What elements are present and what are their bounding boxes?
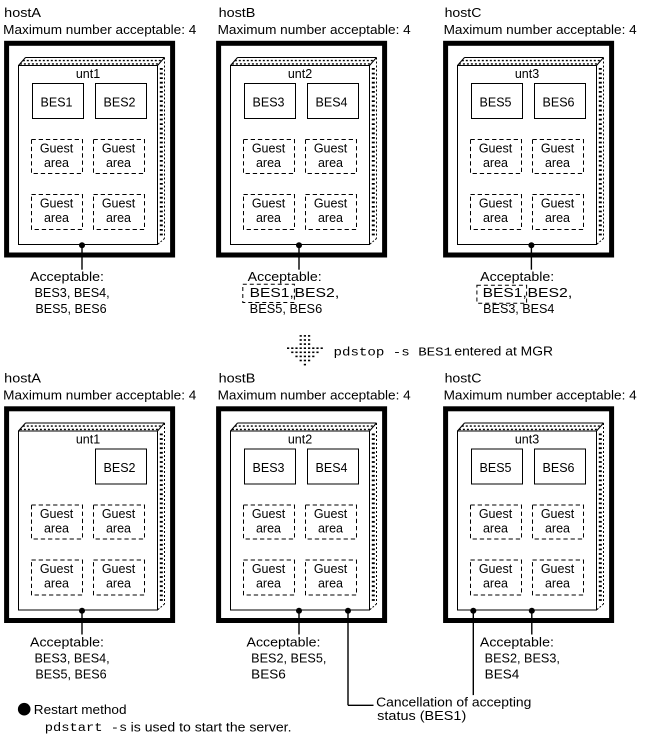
svg-text:area: area bbox=[256, 156, 281, 170]
svg-text:hostC: hostC bbox=[445, 6, 482, 20]
svg-text:unt3: unt3 bbox=[515, 432, 539, 446]
svg-text:Guest: Guest bbox=[479, 507, 513, 521]
svg-text:Guest: Guest bbox=[314, 141, 348, 155]
svg-text:BES4: BES4 bbox=[485, 667, 520, 681]
svg-text:unt2: unt2 bbox=[288, 432, 312, 446]
svg-text:Guest: Guest bbox=[479, 141, 513, 155]
svg-text:Maximum number acceptable: 4: Maximum number acceptable: 4 bbox=[3, 388, 196, 402]
svg-text:Acceptable:: Acceptable: bbox=[480, 635, 554, 649]
svg-text:BES2, BES5,: BES2, BES5, bbox=[251, 651, 326, 665]
svg-text:BES6: BES6 bbox=[543, 95, 575, 109]
svg-text:BES2: BES2 bbox=[104, 461, 136, 475]
svg-text:area: area bbox=[106, 521, 131, 535]
svg-text:unt3: unt3 bbox=[515, 67, 539, 81]
svg-text:BES6: BES6 bbox=[251, 667, 286, 681]
svg-text:BES3: BES3 bbox=[253, 95, 285, 109]
svg-text:Maximum number acceptable: 4: Maximum number acceptable: 4 bbox=[444, 388, 637, 402]
svg-text:BES2, BES3,: BES2, BES3, bbox=[485, 651, 560, 665]
svg-text:BES1: BES1 bbox=[41, 95, 73, 109]
svg-text:Cancellation of accepting: Cancellation of accepting bbox=[376, 696, 531, 710]
svg-text:is used to start the server.: is used to start the server. bbox=[131, 720, 292, 734]
svg-text:Guest: Guest bbox=[314, 197, 348, 211]
svg-text:Guest: Guest bbox=[252, 507, 286, 521]
svg-text:area: area bbox=[44, 211, 69, 225]
svg-text:BES1,: BES1, bbox=[250, 286, 294, 300]
svg-text:Guest: Guest bbox=[40, 141, 74, 155]
svg-text:hostC: hostC bbox=[445, 371, 482, 385]
svg-text:status (BES1): status (BES1) bbox=[377, 709, 466, 723]
svg-text:area: area bbox=[318, 576, 343, 590]
svg-text:BES2,: BES2, bbox=[295, 286, 340, 300]
svg-text:unt1: unt1 bbox=[76, 432, 100, 446]
svg-text:BES6: BES6 bbox=[543, 461, 575, 475]
svg-text:BES1,: BES1, bbox=[483, 286, 527, 300]
svg-text:BES3, BES4,: BES3, BES4, bbox=[35, 651, 110, 665]
svg-text:hostB: hostB bbox=[219, 371, 256, 385]
svg-text:Maximum number acceptable: 4: Maximum number acceptable: 4 bbox=[218, 23, 411, 37]
svg-text:Guest: Guest bbox=[40, 197, 74, 211]
svg-text:area: area bbox=[256, 576, 281, 590]
svg-text:area: area bbox=[106, 211, 131, 225]
svg-text:Acceptable:: Acceptable: bbox=[247, 635, 321, 649]
svg-text:unt1: unt1 bbox=[76, 67, 100, 81]
svg-text:BES3, BES4: BES3, BES4 bbox=[483, 302, 554, 316]
svg-text:hostA: hostA bbox=[4, 371, 42, 385]
svg-text:BES4: BES4 bbox=[316, 461, 348, 475]
svg-text:Maximum number acceptable: 4: Maximum number acceptable: 4 bbox=[444, 23, 637, 37]
svg-text:area: area bbox=[44, 521, 69, 535]
svg-text:Guest: Guest bbox=[541, 141, 575, 155]
svg-text:Guest: Guest bbox=[102, 141, 136, 155]
svg-text:area: area bbox=[256, 521, 281, 535]
svg-text:Guest: Guest bbox=[541, 507, 575, 521]
svg-text:BES5, BES6: BES5, BES6 bbox=[35, 302, 106, 316]
svg-text:area: area bbox=[318, 211, 343, 225]
svg-text:Guest: Guest bbox=[40, 507, 74, 521]
svg-text:BES3: BES3 bbox=[253, 461, 285, 475]
svg-text:Guest: Guest bbox=[541, 562, 575, 576]
svg-text:pdstop -s BES1: pdstop -s BES1 bbox=[334, 347, 453, 360]
svg-text:area: area bbox=[106, 156, 131, 170]
svg-text:area: area bbox=[318, 521, 343, 535]
svg-text:area: area bbox=[483, 156, 508, 170]
svg-text:Guest: Guest bbox=[252, 197, 286, 211]
svg-text:area: area bbox=[545, 156, 570, 170]
svg-text:BES5: BES5 bbox=[480, 461, 512, 475]
svg-text:BES5, BES6: BES5, BES6 bbox=[250, 302, 323, 316]
svg-text:Guest: Guest bbox=[314, 562, 348, 576]
svg-text:area: area bbox=[545, 211, 570, 225]
svg-text:Restart method: Restart method bbox=[34, 703, 127, 717]
svg-text:entered at MGR: entered at MGR bbox=[454, 344, 553, 358]
svg-text:Maximum number acceptable: 4: Maximum number acceptable: 4 bbox=[3, 23, 196, 37]
svg-text:Guest: Guest bbox=[479, 197, 513, 211]
svg-text:BES3, BES4,: BES3, BES4, bbox=[35, 286, 110, 300]
svg-text:area: area bbox=[483, 576, 508, 590]
svg-text:area: area bbox=[106, 576, 131, 590]
svg-text:Guest: Guest bbox=[541, 197, 575, 211]
svg-text:hostB: hostB bbox=[219, 6, 256, 20]
svg-text:Acceptable:: Acceptable: bbox=[30, 270, 104, 284]
svg-text:BES2: BES2 bbox=[104, 95, 136, 109]
svg-text:area: area bbox=[318, 156, 343, 170]
svg-text:Acceptable:: Acceptable: bbox=[480, 270, 554, 284]
svg-text:area: area bbox=[44, 576, 69, 590]
svg-text:pdstart -s: pdstart -s bbox=[45, 722, 128, 735]
svg-text:BES4: BES4 bbox=[316, 95, 348, 109]
svg-text:Guest: Guest bbox=[252, 141, 286, 155]
svg-text:Acceptable:: Acceptable: bbox=[30, 635, 104, 649]
svg-text:area: area bbox=[545, 576, 570, 590]
svg-text:area: area bbox=[483, 521, 508, 535]
svg-text:area: area bbox=[483, 211, 508, 225]
svg-text:BES5, BES6: BES5, BES6 bbox=[35, 667, 106, 681]
svg-text:area: area bbox=[44, 156, 69, 170]
svg-text:Guest: Guest bbox=[314, 507, 348, 521]
svg-text:Maximum number acceptable: 4: Maximum number acceptable: 4 bbox=[218, 388, 411, 402]
svg-text:hostA: hostA bbox=[4, 6, 42, 20]
svg-text:Acceptable:: Acceptable: bbox=[248, 270, 322, 284]
svg-text:BES2,: BES2, bbox=[528, 286, 573, 300]
svg-text:Guest: Guest bbox=[102, 507, 136, 521]
svg-text:Guest: Guest bbox=[40, 562, 74, 576]
svg-text:area: area bbox=[256, 211, 281, 225]
svg-text:Guest: Guest bbox=[252, 562, 286, 576]
svg-text:area: area bbox=[545, 521, 570, 535]
svg-text:Guest: Guest bbox=[102, 562, 136, 576]
svg-text:BES5: BES5 bbox=[480, 95, 512, 109]
svg-text:unt2: unt2 bbox=[288, 67, 312, 81]
svg-text:Guest: Guest bbox=[479, 562, 513, 576]
svg-text:Guest: Guest bbox=[102, 197, 136, 211]
